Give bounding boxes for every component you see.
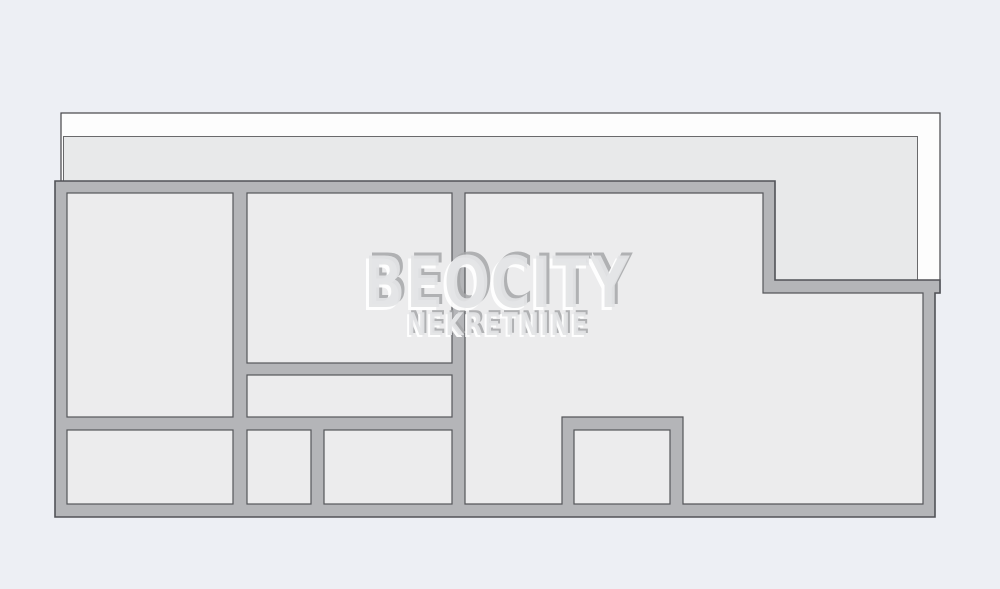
room-bottom-middle xyxy=(324,430,452,504)
room-middle-narrow xyxy=(247,375,452,417)
room-bottom-small xyxy=(247,430,311,504)
room-top-left xyxy=(67,193,233,417)
inner-bottom-room xyxy=(574,430,670,504)
floor-plan-image: BEOCITY BEOCITY BEOCITY NEKRETNINE NEKRE… xyxy=(0,0,1000,589)
watermark-subtitle-face: NEKRETNINE xyxy=(407,307,589,343)
room-bottom-left xyxy=(67,430,233,504)
floor-plan-svg: BEOCITY BEOCITY BEOCITY NEKRETNINE NEKRE… xyxy=(0,0,1000,589)
watermark-subtitle: NEKRETNINE NEKRETNINE NEKRETNINE xyxy=(405,305,591,345)
